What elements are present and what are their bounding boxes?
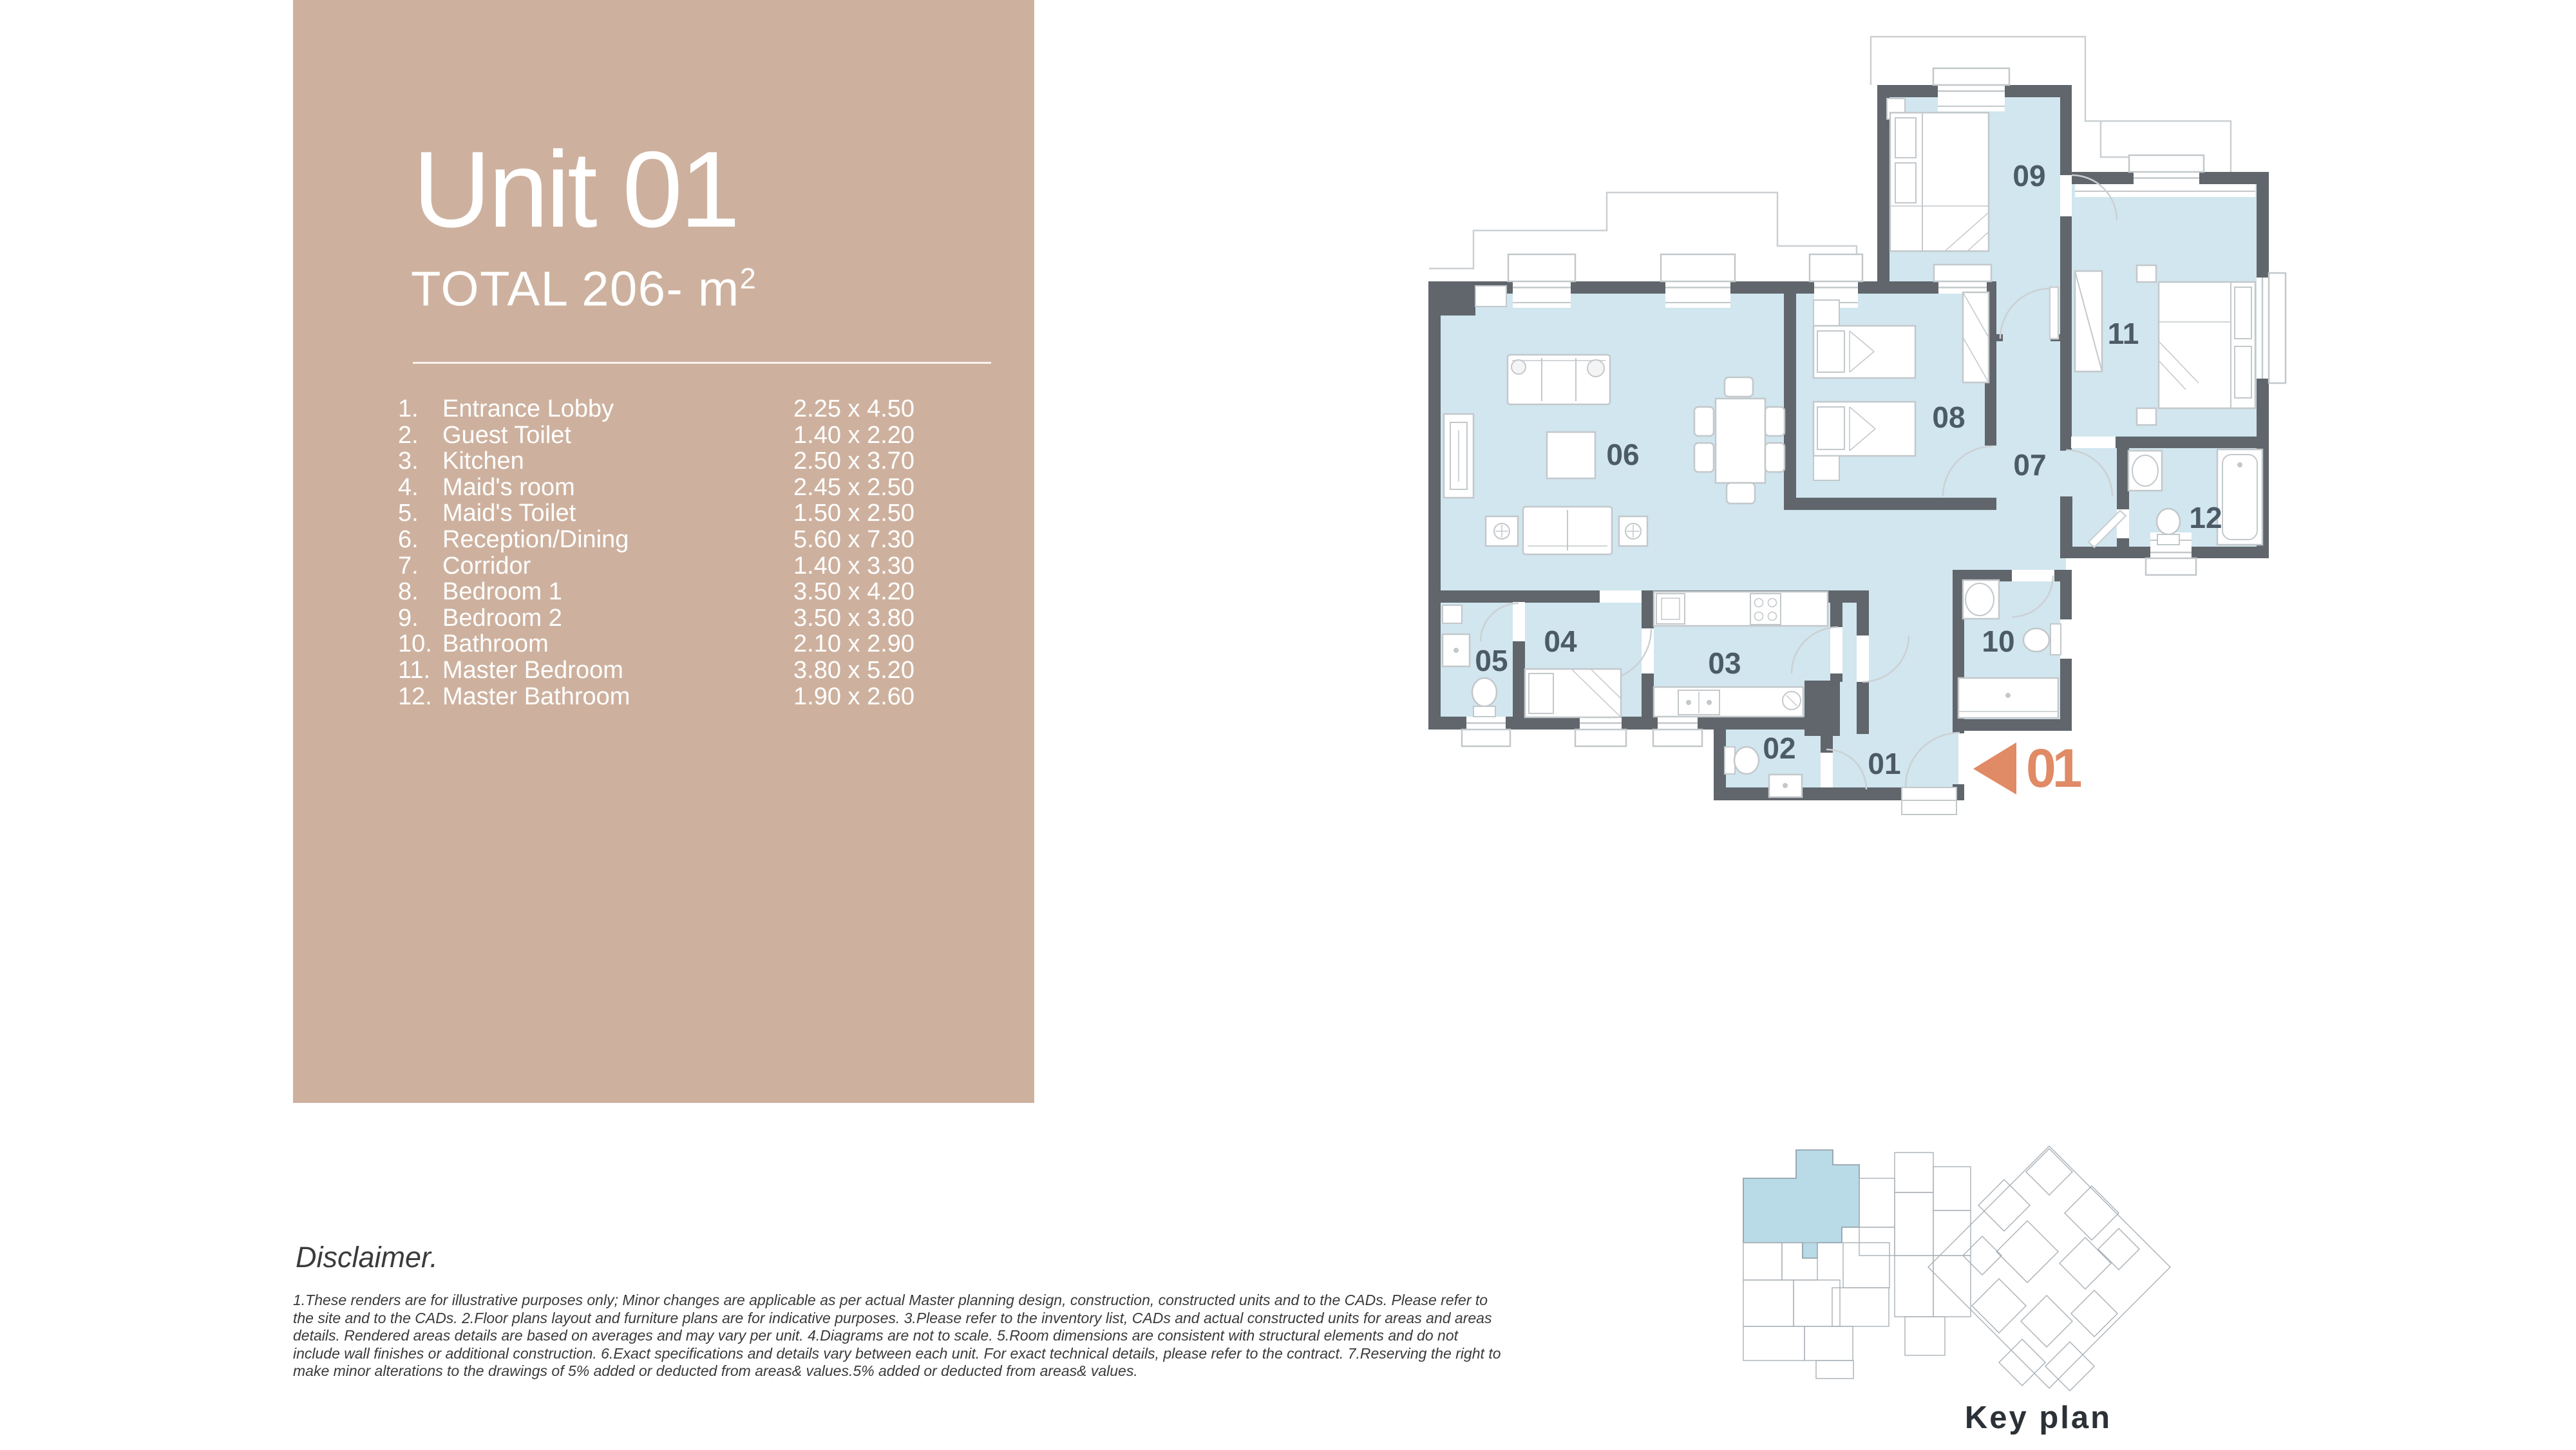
svg-text:05: 05 [1475,644,1508,677]
svg-text:06: 06 [1606,438,1639,471]
svg-text:04: 04 [1544,625,1577,658]
svg-text:11: 11 [2108,317,2139,350]
svg-text:10: 10 [1982,625,2014,658]
svg-text:01: 01 [2026,738,2081,798]
svg-text:07: 07 [2013,448,2046,482]
svg-text:08: 08 [1932,400,1965,434]
svg-text:Key plan: Key plan [1965,1400,2112,1435]
svg-text:12: 12 [2189,501,2222,534]
svg-text:02: 02 [1763,731,1795,765]
svg-text:03: 03 [1708,646,1741,680]
svg-text:09: 09 [2012,159,2045,193]
svg-text:01: 01 [1868,747,1900,780]
